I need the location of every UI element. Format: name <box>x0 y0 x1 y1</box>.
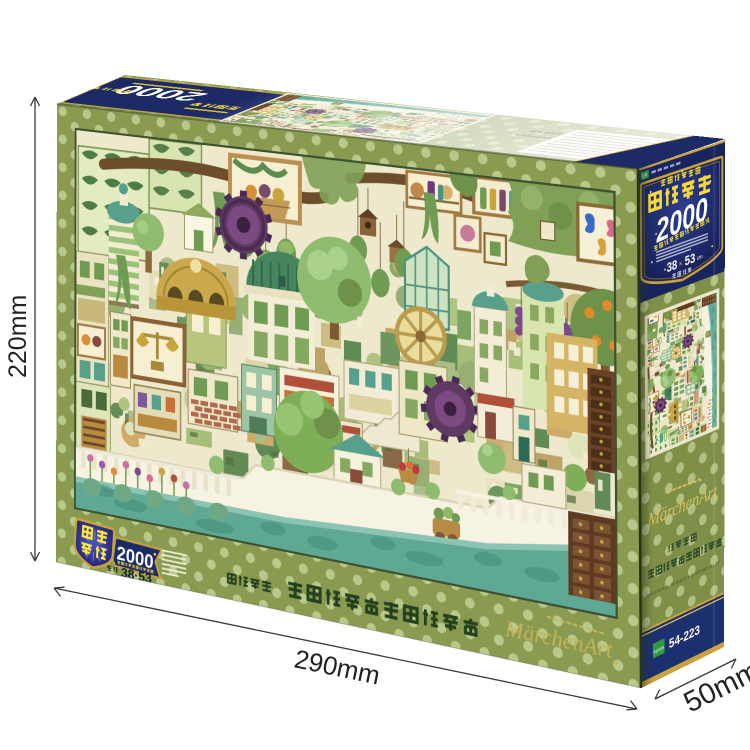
svg-text:220mm: 220mm <box>4 295 32 378</box>
svg-text:50mm: 50mm <box>679 655 750 720</box>
svg-text:290mm: 290mm <box>292 643 383 690</box>
